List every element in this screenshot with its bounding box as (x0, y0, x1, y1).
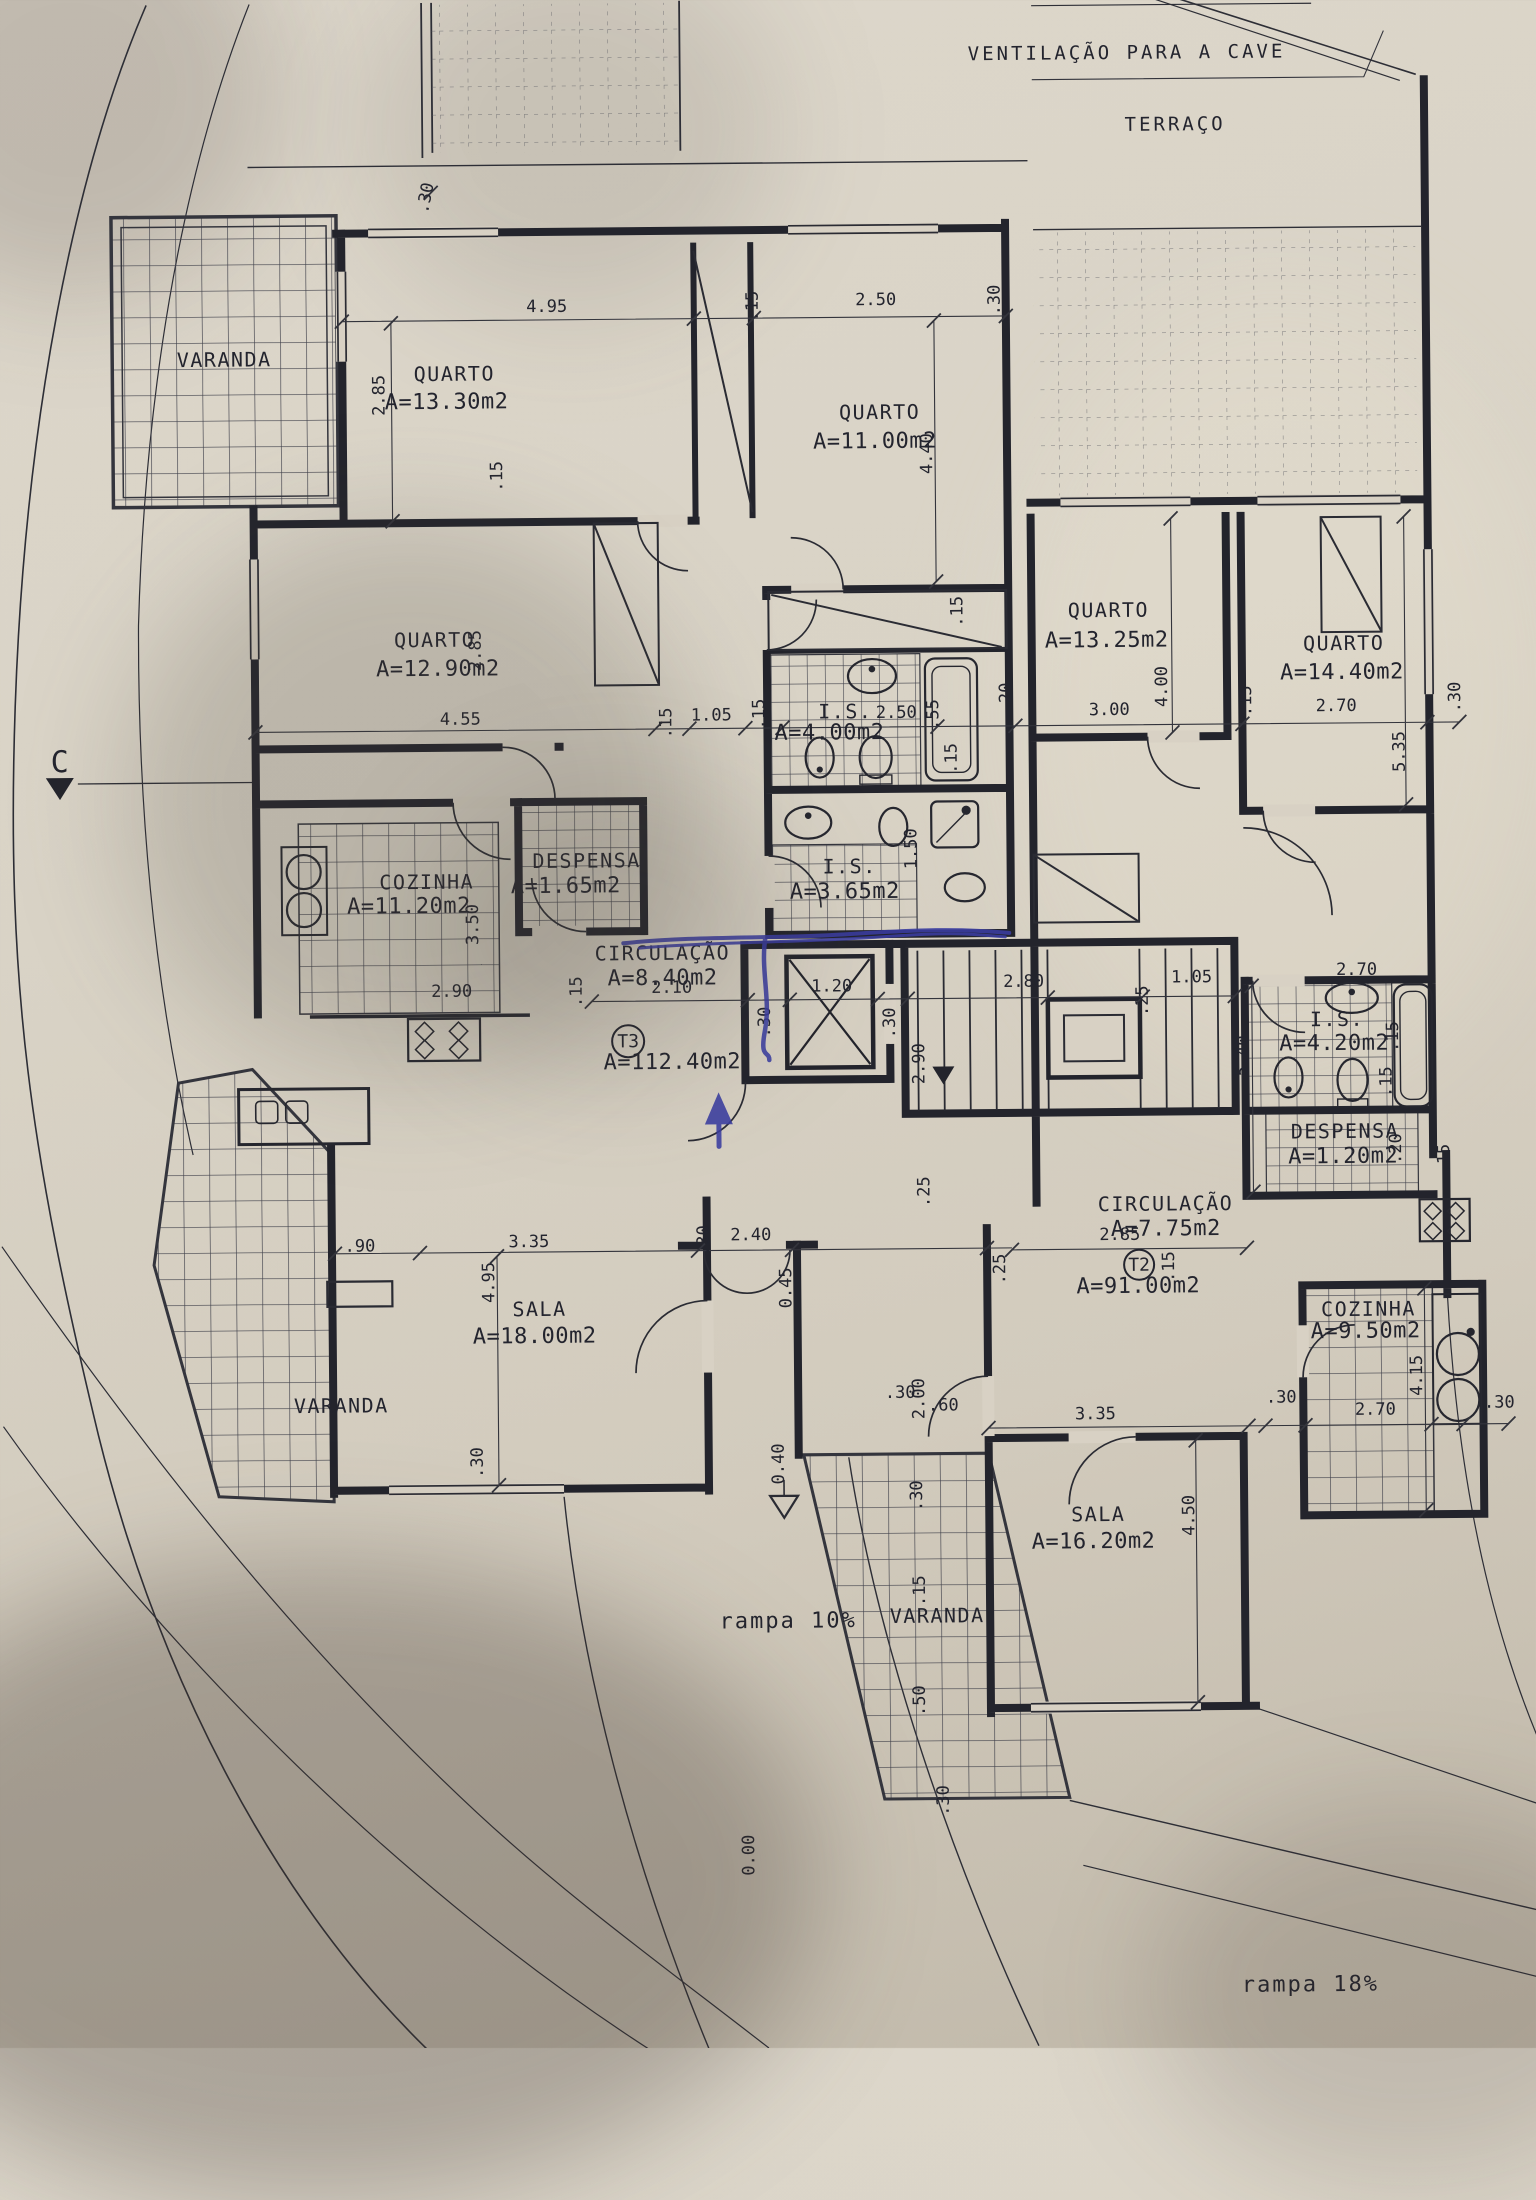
room-label-t3-varanda-sala: VARANDA (294, 1393, 389, 1418)
dim-is2-height: 1.50 (901, 828, 921, 869)
area-label-t2-quarto1: A=13.25m2 (1045, 627, 1169, 653)
stove-symbol (408, 1019, 480, 1062)
section-marker: C (51, 745, 69, 780)
dim-cozinha-width: 2.90 (431, 982, 472, 1002)
dim-hall-15b: .15 (749, 699, 769, 730)
room-label-t3-quarto2: QUARTO (839, 400, 920, 425)
dim-stair-wall: .25 (914, 1176, 934, 1207)
room-label-t2-is1: I.S. (1310, 1007, 1364, 1031)
dim-top-wall: .30 (413, 181, 439, 215)
unit-tag-t3: T3 (617, 1031, 639, 1052)
dim-t2circ-25: .25 (990, 1254, 1010, 1285)
dim-entry-depth: 0.45 (776, 1267, 796, 1308)
area-label-t3-sala: A=18.00m2 (473, 1324, 597, 1350)
dim-q1-wall: .15 (487, 461, 507, 492)
dim-coz2-width: 2.70 (1355, 1400, 1396, 1420)
dim-t2q2-width: 2.70 (1316, 696, 1357, 716)
room-label-t3-cozinha: COZINHA (379, 870, 474, 895)
dim-varanda2-50: .50 (910, 1685, 930, 1716)
dim-t2q1-height: 4.00 (1152, 666, 1172, 707)
room-label-t2-quarto1: QUARTO (1068, 598, 1149, 623)
dim-t2q-gap: .15 (1236, 685, 1256, 716)
stair-landing (1048, 999, 1141, 1078)
dim-t2hall-280: 2.80 (1003, 972, 1044, 992)
area-label-t2-quarto2: A=14.40m2 (1280, 659, 1404, 685)
dim-cozinha-wall: .15 (567, 976, 587, 1007)
area-label-t3-is1: A=4.00m2 (774, 720, 884, 746)
dim-t2q2-height: 5.35 (1389, 731, 1409, 772)
dim-q2-width: 2.50 (855, 290, 896, 310)
dim-porch-30b: .30 (907, 1480, 927, 1511)
dim-coz2-left: .30 (1266, 1387, 1297, 1407)
dim-t2q1-width: 3.00 (1089, 700, 1130, 720)
dim-t2hall-25: .25 (1133, 985, 1153, 1016)
dim-porch-60: .60 (928, 1395, 959, 1415)
elevator-symbol (786, 956, 873, 1068)
room-label-t2-cozinha: COZINHA (1321, 1296, 1416, 1321)
terrace-label: TERRAÇO (1125, 113, 1226, 136)
level-zero: 0.00 (739, 1835, 759, 1876)
area-label-t3-despensa: A=1.65m2 (511, 873, 621, 899)
room-label-t2-despensa: DESPENSA (1291, 1118, 1400, 1143)
sink-symbol (785, 806, 831, 838)
unit-tag-t2: T2 (1128, 1255, 1150, 1276)
stair-direction-arrow (932, 1066, 954, 1084)
dim-varanda2-30: .30 (934, 1785, 954, 1816)
dim-is1-wall2: .15 (942, 743, 962, 774)
dim-q1-width: 4.95 (526, 297, 567, 317)
dim-sala2-width: 3.35 (1075, 1404, 1116, 1424)
dim-t2hall-105: 1.05 (1171, 967, 1212, 987)
dim-varanda2-15: .15 (910, 1575, 930, 1606)
room-label-t2-sala: SALA (1071, 1502, 1125, 1526)
room-label-t3-varanda: VARANDA (177, 347, 272, 372)
dim-cozinha-height: 3.50 (463, 904, 483, 945)
dim-sala3-width: 3.35 (508, 1232, 549, 1252)
room-label-t2-circulacao: CIRCULAÇÃO (1098, 1191, 1234, 1216)
dim-stair-height: 2.90 (909, 1043, 929, 1084)
dim-t2desp-20: .20 (1386, 1133, 1406, 1164)
area-label-t3-quarto1: A=13.30m2 (385, 389, 509, 415)
dim-t2hall-height: 5.40 (1232, 1035, 1252, 1076)
section-marker-arrow (46, 778, 74, 800)
ramp-10-label: rampa 10% (719, 1608, 856, 1634)
sink-symbol (945, 873, 985, 901)
area-label-t2-cozinha: A=9.50m2 (1311, 1318, 1421, 1344)
room-label-t3-despensa: DESPENSA (532, 848, 641, 873)
dim-q3-height: 2.85 (466, 630, 486, 671)
terrace-hatch (431, 0, 1417, 501)
dim-sala3-height: 4.95 (479, 1262, 499, 1303)
dim-q2-height: 4.40 (917, 433, 937, 474)
dim-sala3-wall: .30 (468, 1447, 488, 1478)
dim-sala3-90: .90 (344, 1236, 375, 1256)
room-label-t3-quarto3: QUARTO (394, 628, 475, 653)
pen-arrow-head (705, 1092, 733, 1124)
unit-area-t2: A=91.00m2 (1076, 1273, 1200, 1299)
room-label-t3-quarto1: QUARTO (414, 361, 495, 386)
area-label-t3-is2: A=3.65m2 (790, 879, 900, 905)
dim-is1-wall: .55 (923, 699, 943, 730)
dim-q3-width: 4.55 (440, 709, 481, 729)
shower-symbol (931, 801, 978, 847)
dim-coz2-right: .30 (1484, 1392, 1515, 1412)
ventilation-note: VENTILAÇÃO PARA A CAVE (968, 39, 1286, 65)
dim-t2desp-15: .15 (1434, 1144, 1454, 1175)
ramp-18-label: rampa 18% (1242, 1972, 1379, 1998)
dim-elevator-right: .30 (880, 1007, 900, 1038)
area-label-t2-is1: A=4.20m2 (1279, 1031, 1389, 1057)
dim-entry-240: 2.40 (730, 1225, 771, 1245)
area-label-t2-sala: A=16.20m2 (1032, 1529, 1156, 1555)
room-label-t3-is2: I.S. (822, 854, 876, 878)
dim-porch-200: 2.00 (909, 1378, 929, 1419)
dim-t2q2-wall: .30 (1445, 682, 1465, 713)
dim-coz2-height: 4.15 (1407, 1355, 1427, 1396)
unit-area-t3: A=112.40m2 (603, 1049, 741, 1075)
room-label-t2-varanda: VARANDA (890, 1603, 985, 1628)
dim-t2circ-15: .15 (1159, 1251, 1179, 1282)
dim-circulacao-width: 2.10 (651, 978, 692, 998)
floor-plan-drawing: VENTILAÇÃO PARA A CAVE TERRAÇO C rampa 1… (0, 0, 1536, 2048)
dim-bath-wall: .15 (947, 596, 967, 627)
dim-q1-q2-gap: .15 (743, 291, 763, 322)
dim-hall-15a: .15 (656, 707, 676, 738)
floor-plan-photo: VENTILAÇÃO PARA A CAVE TERRAÇO C rampa 1… (0, 0, 1536, 2048)
dim-sala2-height: 4.50 (1179, 1495, 1199, 1536)
dim-q1-height: 2.85 (369, 375, 389, 416)
dim-t2circ-width: 2.85 (1099, 1225, 1140, 1245)
room-label-t2-quarto2: QUARTO (1303, 631, 1384, 656)
dim-t2is-width: 2.70 (1336, 960, 1377, 980)
area-label-t3-cozinha: A=11.20m2 (347, 894, 471, 920)
dim-t2q1-left: .20 (996, 682, 1016, 713)
dim-hall-105: 1.05 (691, 705, 732, 725)
dim-entry-30: .30 (694, 1225, 714, 1256)
dim-t2is-wall-r: .15 (1383, 1021, 1403, 1052)
level-entrance: 0.40 (769, 1443, 789, 1484)
dim-t2is-wall-b: .15 (1376, 1066, 1396, 1097)
area-label-t2-despensa: A=1.20m2 (1288, 1144, 1398, 1170)
dim-is1-width: 2.50 (876, 703, 917, 723)
dim-q2-wall: .30 (985, 285, 1005, 316)
room-label-t3-sala: SALA (512, 1297, 566, 1321)
dim-elevator-width: 1.20 (811, 976, 852, 996)
